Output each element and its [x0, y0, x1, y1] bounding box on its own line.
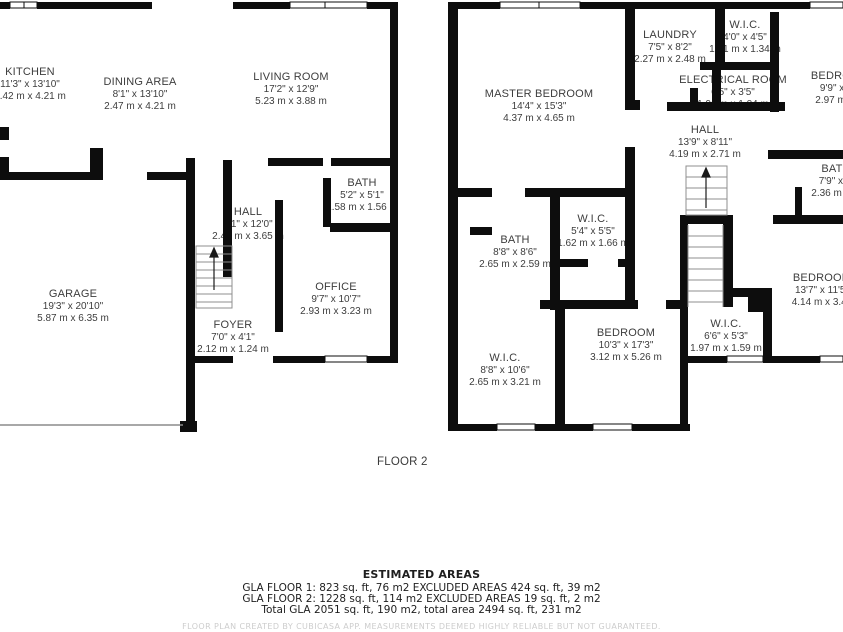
- room-label-garage: GARAGE 19'3" x 20'10" 5.87 m x 6.35 m: [37, 288, 109, 326]
- room-dim-metric: 2.46 m x 3.65 m: [212, 231, 284, 244]
- room-name: HALL: [212, 206, 284, 219]
- room-dim-metric: 2.97 m x 3.: [811, 95, 843, 108]
- room-label-dining-area: DINING AREA 8'1" x 13'10" 2.47 m x 4.21 …: [103, 76, 176, 114]
- room-dim-metric: 4.14 m x 3.48: [792, 297, 843, 310]
- estimated-areas-line3: Total GLA 2051 sq. ft, 190 m2, total are…: [0, 604, 843, 616]
- room-dim-imperial: 6'5" x 3'5": [679, 87, 787, 100]
- room-label-kitchen: KITCHEN 11'3" x 13'10" 3.42 m x 4.21 m: [0, 66, 66, 104]
- disclaimer-text: FLOOR PLAN CREATED BY CUBICASA APP. MEAS…: [0, 622, 843, 631]
- room-label-bath-right: BATH 7'9" x 5' 2.36 m x 1.: [811, 163, 843, 201]
- room-dim-metric: 1.97 m x 1.59 m: [690, 343, 762, 356]
- room-dim-imperial: 8'1" x 13'10": [103, 89, 176, 102]
- room-dim-imperial: 13'7" x 11'5": [792, 285, 843, 298]
- room-dim-metric: 1.96 m x 1.04 m: [679, 99, 787, 112]
- room-dim-metric: 4.37 m x 4.65 m: [485, 113, 594, 126]
- room-dim-metric: 4.19 m x 2.71 m: [669, 149, 741, 162]
- room-name: BEDROOM: [792, 272, 843, 285]
- stairs-up-arrow: [702, 168, 710, 208]
- room-dim-imperial: 6'6" x 5'3": [690, 331, 762, 344]
- room-dim-metric: 2.36 m x 1.: [811, 188, 843, 201]
- room-dim-imperial: 10'3" x 17'3": [590, 340, 662, 353]
- room-name: ELECTRICAL ROOM: [679, 74, 787, 87]
- room-name: W.I.C.: [709, 19, 781, 32]
- room-label-master-bedroom: MASTER BEDROOM 14'4" x 15'3" 4.37 m x 4.…: [485, 88, 594, 126]
- room-dim-metric: 1.62 m x 1.66 m: [557, 238, 629, 251]
- estimated-areas-title: ESTIMATED AREAS: [0, 568, 843, 581]
- room-label-wic-mid: W.I.C. 5'4" x 5'5" 1.62 m x 1.66 m: [557, 213, 629, 251]
- floor1-stairs: [196, 246, 232, 308]
- room-name: BATH: [326, 177, 398, 190]
- room-dim-metric: 3.42 m x 4.21 m: [0, 91, 66, 104]
- room-name: W.I.C.: [557, 213, 629, 226]
- room-label-laundry: LAUNDRY 7'5" x 8'2" 2.27 m x 2.48 m: [634, 29, 706, 67]
- stairs-up-arrow: [210, 248, 218, 290]
- room-name: OFFICE: [300, 281, 372, 294]
- room-dim-metric: 5.87 m x 6.35 m: [37, 313, 109, 326]
- room-dim-imperial: 7'5" x 8'2": [634, 42, 706, 55]
- room-dim-imperial: 7'0" x 4'1": [197, 332, 269, 345]
- room-dim-imperial: 9'7" x 10'7": [300, 294, 372, 307]
- room-dim-imperial: 8'1" x 12'0": [212, 219, 284, 232]
- room-dim-imperial: 11'3" x 13'10": [0, 79, 66, 92]
- floor2-caption: FLOOR 2: [377, 456, 428, 468]
- room-dim-metric: 1.21 m x 1.34 m: [709, 44, 781, 57]
- room-dim-metric: 2.65 m x 3.21 m: [469, 377, 541, 390]
- room-label-wic-top: W.I.C. 4'0" x 4'5" 1.21 m x 1.34 m: [709, 19, 781, 57]
- room-dim-imperial: 19'3" x 20'10": [37, 301, 109, 314]
- room-dim-imperial: 13'9" x 8'11": [669, 137, 741, 150]
- room-dim-imperial: 8'8" x 8'6": [479, 247, 551, 260]
- room-name: FOYER: [197, 319, 269, 332]
- room-dim-metric: 2.27 m x 2.48 m: [634, 54, 706, 67]
- room-dim-imperial: 5'4" x 5'5": [557, 226, 629, 239]
- room-name: LIVING ROOM: [253, 71, 329, 84]
- room-name: HALL: [669, 124, 741, 137]
- room-label-wic-bottom-right: W.I.C. 6'6" x 5'3" 1.97 m x 1.59 m: [690, 318, 762, 356]
- room-label-living-room: LIVING ROOM 17'2" x 12'9" 5.23 m x 3.88 …: [253, 71, 329, 109]
- room-dim-metric: 2.93 m x 3.23 m: [300, 306, 372, 319]
- room-label-wic-bottom-left: W.I.C. 8'8" x 10'6" 2.65 m x 3.21 m: [469, 352, 541, 390]
- room-label-hall-f2: HALL 13'9" x 8'11" 4.19 m x 2.71 m: [669, 124, 741, 162]
- room-label-bath-mid: BATH 8'8" x 8'6" 2.65 m x 2.59 m: [479, 234, 551, 272]
- room-name: BEDROOM: [590, 327, 662, 340]
- room-label-bedroom-top-right: BEDROOM 9'9" x 12' 2.97 m x 3.: [811, 70, 843, 108]
- room-name: W.I.C.: [469, 352, 541, 365]
- room-dim-imperial: 9'9" x 12': [811, 83, 843, 96]
- room-dim-imperial: 7'9" x 5': [811, 176, 843, 189]
- room-dim-imperial: 8'8" x 10'6": [469, 365, 541, 378]
- room-dim-imperial: 5'2" x 5'1": [326, 190, 398, 203]
- floorplan-page: KITCHEN 11'3" x 13'10" 3.42 m x 4.21 m D…: [0, 0, 843, 632]
- room-label-bedroom-bottom-right: BEDROOM 13'7" x 11'5" 4.14 m x 3.48: [792, 272, 843, 310]
- room-label-bedroom-bottom: BEDROOM 10'3" x 17'3" 3.12 m x 5.26 m: [590, 327, 662, 365]
- room-label-bath-f1: BATH 5'2" x 5'1" 1.58 m x 1.56 m: [326, 177, 398, 215]
- room-label-hall-f1: HALL 8'1" x 12'0" 2.46 m x 3.65 m: [212, 206, 284, 244]
- room-name: DINING AREA: [103, 76, 176, 89]
- room-name: BEDROOM: [811, 70, 843, 83]
- room-name: LAUNDRY: [634, 29, 706, 42]
- room-dim-metric: 1.58 m x 1.56 m: [326, 202, 398, 215]
- room-dim-metric: 2.47 m x 4.21 m: [103, 101, 176, 114]
- room-name: MASTER BEDROOM: [485, 88, 594, 101]
- room-name: GARAGE: [37, 288, 109, 301]
- room-label-foyer: FOYER 7'0" x 4'1" 2.12 m x 1.24 m: [197, 319, 269, 357]
- room-name: W.I.C.: [690, 318, 762, 331]
- room-dim-metric: 2.12 m x 1.24 m: [197, 344, 269, 357]
- room-dim-metric: 5.23 m x 3.88 m: [253, 96, 329, 109]
- room-name: BATH: [479, 234, 551, 247]
- room-dim-imperial: 14'4" x 15'3": [485, 101, 594, 114]
- room-label-office: OFFICE 9'7" x 10'7" 2.93 m x 3.23 m: [300, 281, 372, 319]
- room-name: BATH: [811, 163, 843, 176]
- room-dim-imperial: 17'2" x 12'9": [253, 84, 329, 97]
- room-label-electrical-room: ELECTRICAL ROOM 6'5" x 3'5" 1.96 m x 1.0…: [679, 74, 787, 112]
- room-dim-metric: 2.65 m x 2.59 m: [479, 259, 551, 272]
- room-dim-imperial: 4'0" x 4'5": [709, 32, 781, 45]
- floor2-stairs: [686, 166, 727, 307]
- room-dim-metric: 3.12 m x 5.26 m: [590, 352, 662, 365]
- room-name: KITCHEN: [0, 66, 66, 79]
